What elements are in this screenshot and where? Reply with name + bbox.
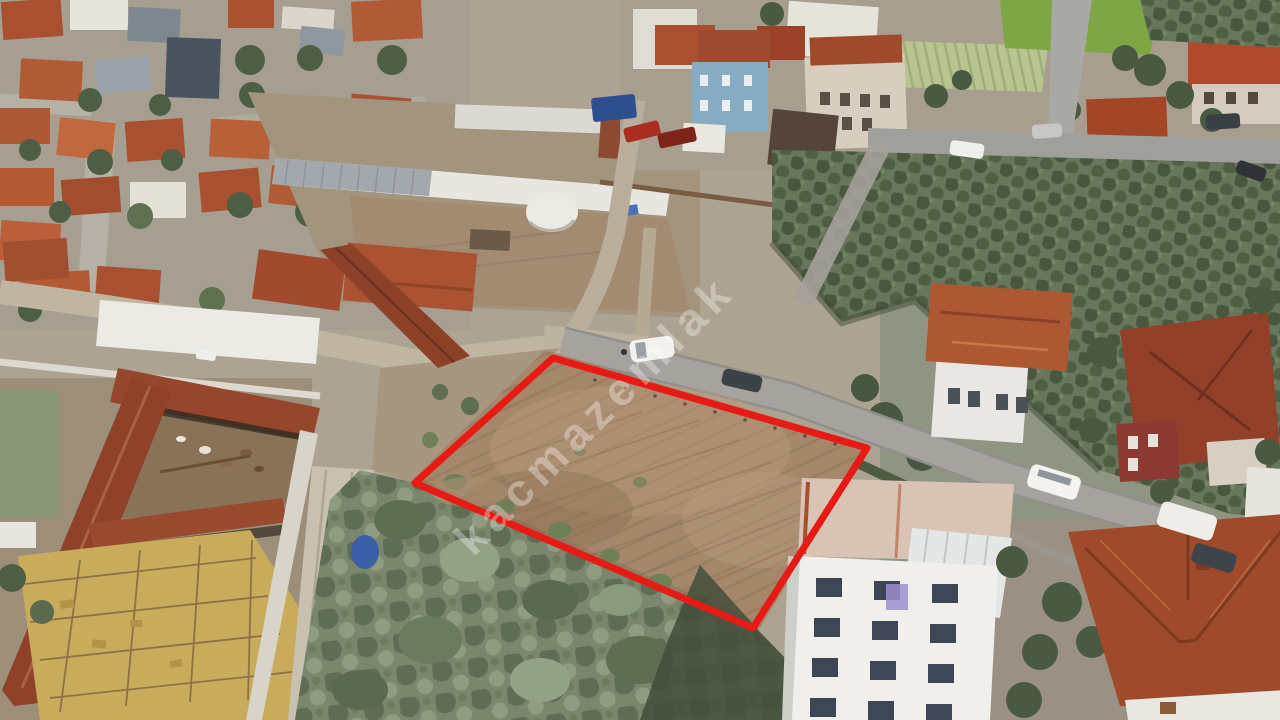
white-outbuilding [1245, 467, 1280, 521]
white-apartment-building [782, 478, 1014, 720]
aerial-photo: kacmazemlak [0, 0, 1280, 720]
window [1160, 702, 1176, 714]
shed [470, 229, 511, 251]
dark-car [1206, 113, 1241, 130]
aerial-photo-canvas: kacmazemlak [0, 0, 1280, 720]
garden-strip [0, 390, 58, 518]
tree [30, 600, 54, 624]
lilac-banner [886, 584, 908, 610]
small-shed [0, 522, 36, 548]
side-path [642, 228, 650, 336]
silver-car [1032, 123, 1063, 139]
blue-tarp-pile [351, 535, 379, 569]
blue-truck [591, 94, 637, 122]
